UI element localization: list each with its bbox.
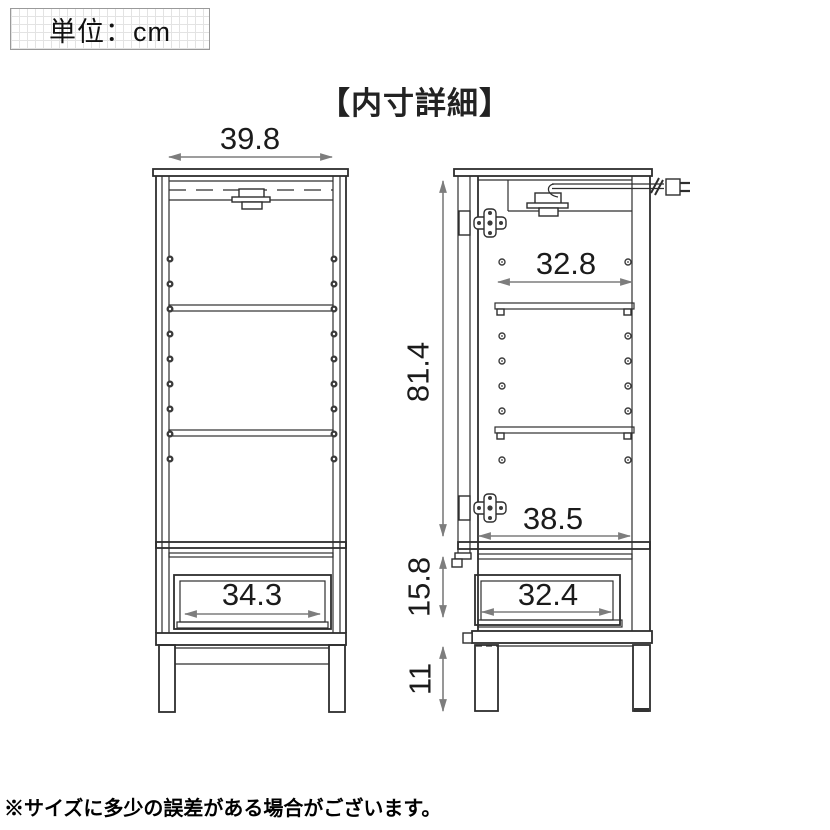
shelf-peg [624, 309, 631, 315]
shelf-peg [497, 309, 504, 315]
top-board [153, 169, 348, 176]
leg-foot [634, 708, 649, 712]
dim-drawer-inner-width: 34.3 [185, 577, 320, 614]
dim-label: 32.8 [536, 246, 596, 281]
shelf [495, 303, 634, 309]
divider-board [156, 542, 346, 548]
shelf-peg [497, 433, 504, 439]
hinge-top-icon [459, 209, 506, 237]
dim-label: 32.4 [518, 577, 578, 612]
shelf [495, 427, 634, 433]
dim-drawer-inner-height: 15.8 [402, 557, 444, 617]
divider-board [458, 542, 650, 549]
door-catch [452, 559, 462, 567]
dim-shelf-inner-width: 32.8 [498, 246, 632, 282]
shelf-pin-holes [167, 256, 338, 463]
shelf-peg [624, 433, 631, 439]
dim-leg-height: 11 [403, 647, 444, 711]
dim-label: 34.3 [222, 577, 282, 612]
top-board [454, 169, 652, 176]
latch-icon [527, 193, 568, 216]
right-leg [329, 645, 345, 712]
drawer-opening-frame [478, 554, 632, 559]
latch-icon [232, 189, 270, 209]
hinge-bottom-icon [459, 494, 506, 522]
shelf [169, 305, 333, 311]
dim-label: 11 [403, 663, 438, 695]
dim-upper-inner-height: 81.4 [401, 181, 444, 536]
disclaimer-note: ※サイズに多少の誤差がある場合がございます。 [4, 792, 441, 821]
left-leg [475, 645, 498, 711]
right-cabinet-view: 32.8 [401, 169, 691, 712]
dim-label: 15.8 [402, 557, 437, 617]
dim-top-inner-width: 39.8 [169, 121, 332, 157]
cabinet-line-drawing: 39.8 [0, 0, 830, 830]
power-cord-plug-icon [548, 178, 690, 197]
right-leg [633, 645, 650, 711]
door-bottom-tab [455, 553, 471, 559]
dim-label: 38.5 [523, 501, 583, 536]
dim-label: 81.4 [401, 342, 436, 402]
left-leg [159, 645, 175, 712]
dim-drawer-inner-width: 32.4 [482, 577, 611, 612]
bottom-board [472, 631, 652, 643]
door-bottom-corner [463, 633, 472, 643]
bottom-board [156, 633, 346, 645]
dim-label: 39.8 [220, 121, 280, 156]
shelf [169, 430, 333, 436]
shelf-pin-holes [499, 259, 631, 463]
left-cabinet-view: 39.8 [153, 121, 348, 712]
drawer-opening-frame [169, 553, 333, 557]
dimension-diagram-page: 単位：cm 【内寸詳細】 39.8 [0, 0, 830, 830]
